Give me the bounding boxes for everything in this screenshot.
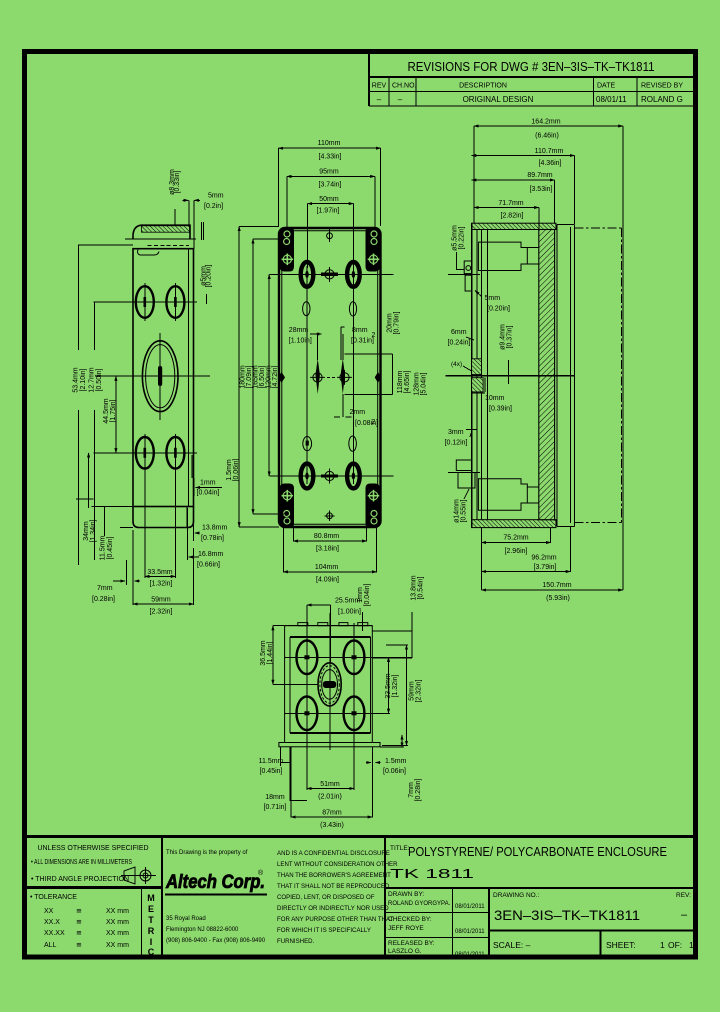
svg-text:≌: ≌ [76,942,82,949]
svg-text:33.5mm: 33.5mm [147,569,172,576]
svg-text:T: T [148,915,154,925]
svg-text:110mm: 110mm [318,140,341,147]
svg-text:1.5mm: 1.5mm [226,459,233,481]
svg-text:110.7mm: 110.7mm [535,148,564,155]
svg-text:53.4mm: 53.4mm [73,367,80,392]
svg-text:–: – [681,909,688,921]
svg-text:[0.28in]: [0.28in] [92,596,115,603]
svg-text:[0.31in]: [0.31in] [351,338,374,345]
svg-text:[2.32in]: [2.32in] [150,609,173,616]
svg-text:AND IS A CONFIDENTIAL DISCLOSU: AND IS A CONFIDENTIAL DISCLOSURE [277,850,390,857]
svg-text:[2.10in]: [2.10in] [80,368,87,391]
svg-text:7mm: 7mm [97,585,113,592]
svg-text:[0.50in]: [0.50in] [96,368,103,391]
svg-text:44.5mm: 44.5mm [103,398,110,423]
svg-text:E: E [148,904,154,914]
svg-text:(3.43in): (3.43in) [320,822,344,829]
svg-text:75.2mm: 75.2mm [503,535,528,542]
svg-text:FOR ANY PURPOSE OTHER THAN THA: FOR ANY PURPOSE OTHER THAN THAT [277,916,394,923]
svg-text:28mm: 28mm [289,327,309,334]
svg-text:ROLAND G: ROLAND G [641,95,683,104]
svg-text:–: – [377,95,382,104]
svg-text:XX mm: XX mm [106,919,129,926]
svg-text:18mm: 18mm [265,794,285,801]
svg-text:[2.32in]: [2.32in] [415,679,422,702]
svg-text:®: ® [258,869,264,877]
svg-text:≌: ≌ [76,908,82,915]
svg-text:ø14mm: ø14mm [454,499,461,523]
svg-text:Altech Corp.: Altech Corp. [165,871,265,893]
svg-text:[3.53in]: [3.53in] [530,186,553,193]
svg-text:[0.20in]: [0.20in] [206,264,213,287]
svg-text:LENT WITHOUT CONSIDERATION OTH: LENT WITHOUT CONSIDERATION OTHER [277,861,398,868]
svg-text:DIRECTLY OR INDIRECTLY NOR USE: DIRECTLY OR INDIRECTLY NOR USED [277,905,389,912]
svg-text:UNLESS OTHERWISE SPECIFIED: UNLESS OTHERWISE SPECIFIED [37,845,148,852]
svg-text:DATE: DATE [597,83,615,90]
svg-text:R: R [148,926,155,936]
svg-text:[0.24in]: [0.24in] [448,340,471,347]
svg-text:35 Royal Road: 35 Royal Road [166,916,206,922]
svg-text:[1.32in]: [1.32in] [150,581,173,588]
svg-text:[0.2in]: [0.2in] [204,203,223,210]
svg-text:Flemington NJ 08822-6000: Flemington NJ 08822-6000 [166,927,239,933]
svg-text:XX mm: XX mm [106,942,129,949]
svg-text:XX.XX: XX.XX [44,930,65,937]
svg-text:XX mm: XX mm [106,908,129,915]
svg-text:[4.72in]: [4.72in] [272,365,279,388]
svg-text:C: C [148,947,155,957]
svg-text:08/01/2011: 08/01/2011 [455,952,485,958]
svg-text:[0.37in]: [0.37in] [507,325,514,348]
svg-text:TK 1811: TK 1811 [390,867,474,881]
svg-text:JEFF ROYE: JEFF ROYE [388,925,424,932]
svg-text:[0.06in]: [0.06in] [383,768,406,775]
svg-text:COPIED, LENT, OR DISPOSED OF: COPIED, LENT, OR DISPOSED OF [277,894,375,901]
svg-text:POLYSTYRENE/ POLYCARBONATE ENC: POLYSTYRENE/ POLYCARBONATE ENCLOSURE [408,845,667,859]
svg-text:• TOLERANCE: • TOLERANCE [30,894,77,901]
svg-text:XX.X: XX.X [44,919,60,926]
svg-text:[0.20in]: [0.20in] [487,306,510,313]
svg-text:150.7mm: 150.7mm [542,582,571,589]
svg-text:• ALL DIMENSIONS ARE IN MILLIM: • ALL DIMENSIONS ARE IN MILLIMETERS [31,859,132,866]
svg-text:SHEET:: SHEET: [606,940,636,950]
svg-text:59mm: 59mm [151,597,171,604]
svg-text:XX mm: XX mm [106,930,129,937]
svg-text:THAT IT SHALL NOT BE REPRODUCE: THAT IT SHALL NOT BE REPRODUCED, [277,883,391,890]
svg-text:10mm: 10mm [485,395,505,402]
svg-text:[4.36in]: [4.36in] [539,160,562,167]
svg-text:[0.45in]: [0.45in] [260,768,283,775]
svg-text:[3.18in]: [3.18in] [316,546,339,553]
svg-text:128mm: 128mm [414,372,421,396]
svg-text:ø9.4mm: ø9.4mm [500,324,507,350]
svg-text:≌: ≌ [76,930,82,937]
svg-text:08/01/11: 08/01/11 [596,95,627,104]
svg-text:[0.71in]: [0.71in] [264,804,287,811]
svg-text:[0.45in]: [0.45in] [107,536,114,559]
svg-text:5mm: 5mm [208,193,224,200]
svg-text:1mm: 1mm [200,480,216,487]
svg-text:36.5mm: 36.5mm [260,640,267,665]
svg-text:1: 1 [689,940,694,950]
svg-text:This Drawing is the property o: This Drawing is the property of [166,850,248,856]
svg-text:≌: ≌ [76,919,82,926]
svg-text:[0.22in]: [0.22in] [459,226,466,249]
svg-text:89.7mm: 89.7mm [527,172,552,179]
svg-text:[0.54in]: [0.54in] [418,576,425,599]
svg-text:[4.09in]: [4.09in] [316,577,339,584]
svg-text:16.8mm: 16.8mm [198,551,223,558]
svg-text:[0.79in]: [0.79in] [393,311,400,334]
svg-text:[0.66in]: [0.66in] [197,562,220,569]
svg-text:11.5mm: 11.5mm [259,758,284,765]
svg-text:[1.32in]: [1.32in] [392,674,399,697]
svg-text:TITLE:: TITLE: [390,845,410,852]
svg-text:50mm: 50mm [319,196,339,203]
svg-text:08/01/2011: 08/01/2011 [455,929,485,935]
svg-text:OF:: OF: [668,940,682,950]
svg-text:–: – [398,95,403,104]
svg-text:71.7mm: 71.7mm [498,200,523,207]
svg-text:• THIRD ANGLE PROJECTION: • THIRD ANGLE PROJECTION [31,876,129,883]
svg-text:[1.97in]: [1.97in] [317,208,340,215]
svg-text:SCALE: –: SCALE: – [493,940,531,950]
svg-text:CH.NO.: CH.NO. [392,83,417,90]
svg-text:[4.33in]: [4.33in] [319,154,342,161]
svg-text:(2.01in): (2.01in) [318,794,342,801]
svg-text:[0.04in]: [0.04in] [364,583,371,606]
svg-text:80.8mm: 80.8mm [314,533,339,540]
svg-text:104mm: 104mm [315,564,339,571]
svg-text:[0.78in]: [0.78in] [201,535,224,542]
svg-text:3EN–3IS–TK–TK1811: 3EN–3IS–TK–TK1811 [494,907,640,923]
svg-text:2mm: 2mm [350,409,366,416]
svg-text:1.5mm: 1.5mm [385,758,407,765]
svg-text:[3.79in]: [3.79in] [534,564,557,571]
svg-text:CHECKED BY:: CHECKED BY: [388,916,432,923]
svg-text:RELEASED BY:: RELEASED BY: [388,940,435,947]
svg-text:REVISED BY: REVISED BY [641,83,683,90]
svg-text:118mm: 118mm [397,370,404,393]
svg-text:164.2mm: 164.2mm [531,119,560,126]
svg-text:ORIGINAL DESIGN: ORIGINAL DESIGN [463,95,534,104]
svg-text:ROLAND GYORGYPA.: ROLAND GYORGYPA. [388,901,451,907]
svg-text:[1.10in]: [1.10in] [289,338,312,345]
svg-text:DRAWN BY:: DRAWN BY: [388,891,424,898]
svg-text:[2.96in]: [2.96in] [505,548,528,555]
svg-text:1mm: 1mm [357,587,364,603]
svg-text:(908) 806-9400 - Fax (908) 806: (908) 806-9400 - Fax (908) 806-9490 [166,938,266,944]
svg-text:[0.28in]: [0.28in] [415,778,422,801]
svg-text:DESCRIPTION: DESCRIPTION [459,83,507,90]
svg-text:[0.55in]: [0.55in] [461,499,468,522]
svg-text:ø5.5mm: ø5.5mm [452,225,459,251]
svg-text:[2.82in]: [2.82in] [501,213,524,220]
svg-text:11.5mm: 11.5mm [100,535,107,560]
svg-text:REV: REV [372,83,387,90]
svg-text:95mm: 95mm [319,169,339,176]
svg-text:FOR WHICH IT IS SPECIFICALLY: FOR WHICH IT IS SPECIFICALLY [277,927,371,934]
svg-text:REV:: REV: [676,892,691,899]
svg-text:ALL: ALL [44,942,57,949]
svg-text:6mm: 6mm [451,329,467,336]
svg-text:51mm: 51mm [320,781,340,788]
svg-text:12.7mm: 12.7mm [89,367,96,392]
svg-text:7mm: 7mm [408,782,415,798]
svg-text:59mm: 59mm [408,681,415,701]
svg-text:5mm: 5mm [485,295,501,302]
svg-text:THAN THE BORROWER'S AGREEMENT: THAN THE BORROWER'S AGREEMENT [277,872,391,879]
svg-text:(6.46in): (6.46in) [535,133,559,140]
svg-text:M: M [147,893,155,903]
svg-text:08/01/2011: 08/01/2011 [455,904,485,910]
svg-text:[1.00in]: [1.00in] [338,609,361,616]
svg-text:DRAWING NO.:: DRAWING NO.: [493,892,540,899]
svg-text:13.8mm: 13.8mm [202,525,227,532]
svg-text:13.8mm: 13.8mm [411,575,418,600]
svg-text:[0.12in]: [0.12in] [445,440,468,447]
svg-text:3mm: 3mm [448,429,464,436]
svg-text:REVISIONS FOR DWG # 3EN–3IS–TK: REVISIONS FOR DWG # 3EN–3IS–TK–TK1811 [408,59,655,74]
svg-text:[1.34in]: [1.34in] [90,519,97,542]
svg-text:87mm: 87mm [322,810,342,817]
svg-text:I: I [150,937,153,947]
svg-text:96.2mm: 96.2mm [531,555,556,562]
svg-text:FURNISHED.: FURNISHED. [277,938,315,945]
svg-text:[5.04in]: [5.04in] [421,372,428,395]
svg-text:[0.08in]: [0.08in] [355,420,378,427]
svg-text:[0.33in]: [0.33in] [174,170,181,193]
svg-text:[0.04in]: [0.04in] [197,490,220,497]
svg-text:[0.39in]: [0.39in] [489,406,512,413]
svg-text:8mm: 8mm [352,327,368,334]
svg-text:(5.93in): (5.93in) [546,595,570,602]
svg-text:20mm: 20mm [386,313,393,333]
svg-text:[3.74in]: [3.74in] [319,182,342,189]
svg-text:XX: XX [44,908,54,915]
svg-text:[4.65in]: [4.65in] [404,370,411,393]
svg-text:(4x): (4x) [451,361,462,368]
svg-text:34mm: 34mm [83,521,90,541]
svg-text:1: 1 [660,940,665,950]
svg-text:LASZLO G.: LASZLO G. [388,948,422,955]
